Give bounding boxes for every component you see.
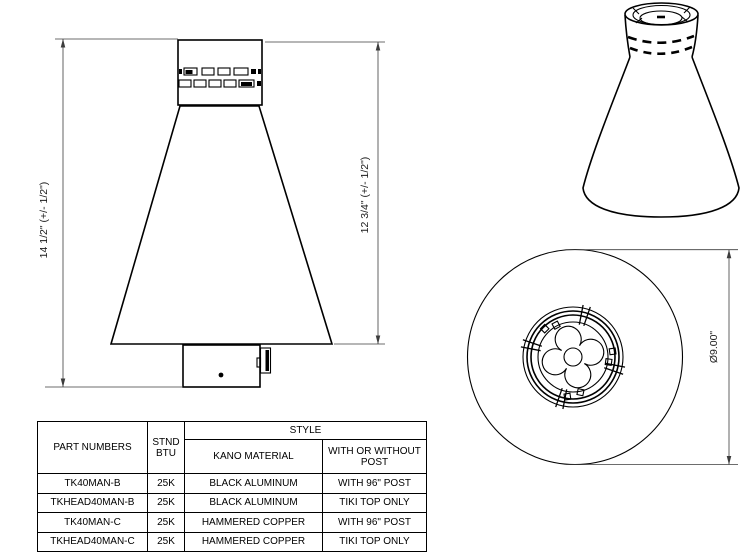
cell-btu: 25K [148, 493, 185, 513]
header-with-or-without-post: WITH OR WITHOUT POST [323, 440, 427, 474]
cell-part: TK40MAN-C [38, 513, 148, 533]
table-row: TKHEAD40MAN-B 25K BLACK ALUMINUM TIKI TO… [38, 493, 427, 513]
cell-material: HAMMERED COPPER [185, 532, 323, 552]
cell-post: TIKI TOP ONLY [323, 493, 427, 513]
vent-slots-row1 [179, 68, 261, 75]
cell-btu: 25K [148, 474, 185, 494]
header-stnd-btu: STND BTU [148, 422, 185, 474]
header-style: STYLE [185, 422, 427, 440]
header-part-numbers: PART NUMBERS [38, 422, 148, 474]
vent-band-1 [628, 36, 694, 43]
drawing-canvas: 14 1/2" (+/- 1/2") 12 3/4" (+/- 1/2") [0, 0, 745, 555]
header-kano-material: KANO MATERIAL [185, 440, 323, 474]
table-row: TKHEAD40MAN-C 25K HAMMERED COPPER TIKI T… [38, 532, 427, 552]
cell-post: WITH 96" POST [323, 513, 427, 533]
front-dim-left: 14 1/2" (+/- 1/2") [38, 39, 183, 387]
center-orifice [564, 348, 582, 366]
quatrefoil-casting [542, 326, 604, 388]
front-view [111, 40, 332, 387]
ring-spokes [521, 305, 625, 409]
valve-knob [257, 348, 271, 373]
cell-part: TK40MAN-B [38, 474, 148, 494]
parts-table: PART NUMBERS STND BTU STYLE KANO MATERIA… [37, 421, 427, 552]
top-plan-view [468, 250, 683, 465]
shade-outer-circle [468, 250, 683, 465]
cone-shade [111, 106, 332, 344]
burner-ring-2 [527, 311, 619, 403]
post-collar [183, 345, 260, 387]
burner-ring-4 [538, 322, 608, 392]
dim-label-diameter: Ø9.00" [708, 331, 720, 364]
cylinder-wall-left [625, 15, 630, 57]
cell-material: HAMMERED COPPER [185, 513, 323, 533]
cell-part: TKHEAD40MAN-C [38, 532, 148, 552]
vent-band-2 [630, 47, 692, 54]
dim-label-overall-height: 14 1/2" (+/- 1/2") [38, 182, 50, 259]
cell-part: TKHEAD40MAN-B [38, 493, 148, 513]
cell-post: TIKI TOP ONLY [323, 532, 427, 552]
dim-label-head-height: 12 3/4" (+/- 1/2") [359, 157, 371, 234]
cell-post: WITH 96" POST [323, 474, 427, 494]
cell-btu: 25K [148, 513, 185, 533]
table-row: TK40MAN-C 25K HAMMERED COPPER WITH 96" P… [38, 513, 427, 533]
isometric-view [583, 3, 739, 217]
cone-body [583, 57, 739, 217]
cell-material: BLACK ALUMINUM [185, 493, 323, 513]
table-row: TK40MAN-B 25K BLACK ALUMINUM WITH 96" PO… [38, 474, 427, 494]
collar-screw-dot [219, 373, 224, 378]
cell-btu: 25K [148, 532, 185, 552]
vent-slots-row2 [179, 80, 261, 87]
cell-material: BLACK ALUMINUM [185, 474, 323, 494]
front-dim-right: 12 3/4" (+/- 1/2") [265, 42, 385, 344]
